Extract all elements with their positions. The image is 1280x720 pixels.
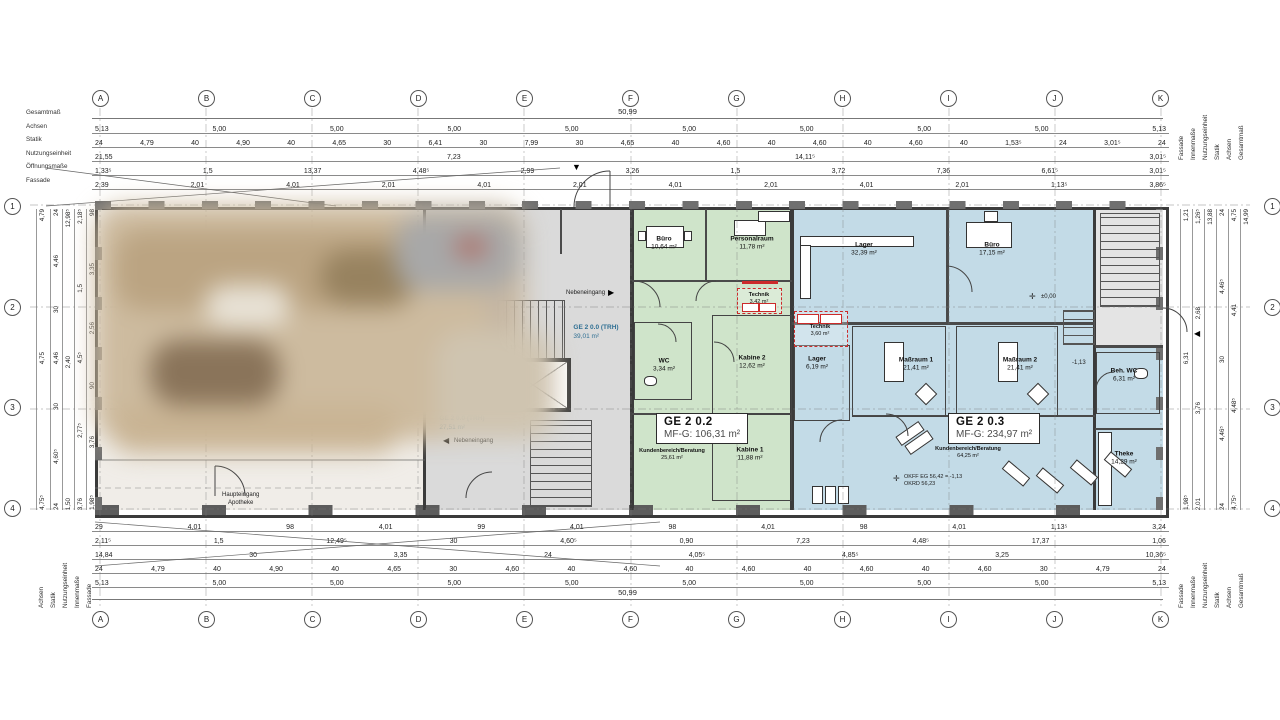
dim-value: 5,13 [1152, 126, 1166, 134]
dim-col-statik-right: 244,46⁵304,46⁵24 [1216, 209, 1228, 510]
dim-value: 24 [544, 552, 552, 560]
room-name: Kabine 2 [738, 355, 765, 363]
axis-bubble: I [940, 611, 957, 628]
dim-value: 0,90 [680, 538, 694, 546]
room-label: Büro 17,15 m² [979, 242, 1005, 259]
room-name: Technik [810, 324, 830, 331]
level-zero-note: ±0,00 [1041, 294, 1056, 302]
dim-value: 40 [672, 140, 680, 148]
dim-value: 1,06 [1152, 538, 1166, 546]
haupteingang-text: Haupteingang [222, 492, 259, 500]
dim-value: 24 [1219, 503, 1226, 510]
dim-value: 5,00 [565, 126, 579, 134]
dim-value: 29 [95, 524, 103, 532]
dim-row-statik-bottom: 244,79404,90404,65304,60404,60404,60404,… [92, 562, 1169, 574]
dim-row-statik-top: 244,79404,90404,65306,41307,99304,65404,… [92, 136, 1169, 148]
dim-label: Innenmaße [1190, 55, 1197, 160]
dim-value: 2,01 [955, 182, 969, 190]
dim-total-top: 50,99 [92, 107, 1163, 119]
room-label: Maßraum 2 21,41 m² [1003, 357, 1037, 374]
level-marker-icon: ✛ [893, 475, 900, 483]
dim-value: 1,13⁵ [1051, 524, 1068, 532]
dim-value: 3,26 [626, 168, 640, 176]
dim-value: 4,60 [742, 566, 756, 574]
wall [1095, 345, 1163, 348]
wc-fixture [644, 376, 657, 386]
room-area: 32,39 m² [851, 250, 877, 258]
dim-label: Nutzungseinheit [1202, 528, 1209, 608]
dim-value: 3,76 [1195, 402, 1202, 414]
dim-value: 13,88 [1207, 209, 1214, 225]
dim-value: 2,01 [1195, 498, 1202, 510]
dim-value: 4,60 [909, 140, 923, 148]
dim-value: 24 [1219, 209, 1226, 216]
dim-value: 98 [669, 524, 677, 532]
dim-value: 4,05⁵ [689, 552, 706, 560]
dim-value: 5,00 [1035, 580, 1049, 588]
furniture-table [734, 220, 766, 236]
dim-value: 4,60 [860, 566, 874, 574]
room-label: Technik 3,60 m² [810, 324, 830, 338]
dim-value: 5,00 [917, 580, 931, 588]
room-label: Kabine 2 12,62 m² [738, 355, 765, 372]
dim-value: 4,85⁵ [842, 552, 859, 560]
axis-bubble: E [516, 611, 533, 628]
dim-value: 4,01 [188, 524, 202, 532]
dim-value: 98 [860, 524, 868, 532]
dim-value: 3,24 [1152, 524, 1166, 532]
axis-bubble: F [622, 611, 639, 628]
axis-bubble: 2 [1264, 299, 1280, 316]
dim-row-nutzung-top: 21,557,2314,11⁵3,01⁵ [92, 150, 1169, 162]
dim-value: 4,01 [477, 182, 491, 190]
unit-area: MF-G: 106,31 m² [664, 429, 740, 440]
dim-label: Gesamtmaß [26, 106, 71, 120]
stairs-right [1100, 213, 1160, 307]
dim-value: 40 [864, 140, 872, 148]
axis-bubble: H [834, 611, 851, 628]
dim-value: 24 [1158, 566, 1166, 574]
room-label: Kundenbereich/Beratung 64,25 m² [935, 446, 1001, 460]
dim-value: 10,36⁵ [1146, 552, 1166, 560]
dim-value: 4,01 [379, 524, 393, 532]
dim-value: 5,00 [800, 580, 814, 588]
dim-value: 4,01 [860, 182, 874, 190]
level-minus-note: -1,13 [1072, 360, 1086, 368]
furniture-chair [984, 211, 998, 222]
room-label: Kundenbereich/Beratung 25,61 m² [639, 448, 705, 462]
room-area: 11,78 m² [730, 244, 773, 252]
dim-value: 1,50 [65, 498, 72, 510]
dim-value: 4,65 [387, 566, 401, 574]
dim-value: 4,79 [151, 566, 165, 574]
furniture-counter-theke [1098, 432, 1112, 506]
room-area: 3,34 m² [653, 366, 675, 374]
furniture-box [825, 486, 836, 504]
dim-value: 3,01⁵ [1149, 168, 1166, 176]
room-area: 21,41 m² [1003, 365, 1037, 373]
dim-label: Achsen [38, 528, 45, 608]
room-area: 25,61 m² [639, 455, 705, 462]
room-area: 14,29 m² [1111, 459, 1137, 467]
dim-value: 2,11⁵ [95, 538, 111, 546]
room-label: Büro 10,64 m² [651, 236, 677, 253]
dim-value: 40 [567, 566, 575, 574]
room-area: 11,88 m² [736, 455, 763, 463]
dim-value: 4,01 [761, 524, 775, 532]
dim-value: 3,86⁵ [1149, 182, 1166, 190]
dim-label: Statik [26, 133, 71, 147]
axis-bubble: H [834, 90, 851, 107]
dim-value: 1,33⁵ [95, 168, 112, 176]
dim-value: 1,5 [203, 168, 213, 176]
dim-label: Achsen [1226, 55, 1233, 160]
dim-row-oeffnung-top: 1,33⁵1,513,374,48⁵2,993,261,53,727,366,6… [92, 164, 1169, 176]
dim-label: Nutzungseinheit [62, 528, 69, 608]
room-area: 12,62 m² [738, 363, 765, 371]
trh-label-upper: GE 2 0.0 (TRH) 39,01 m² [573, 324, 618, 342]
dim-row-nutzung-bottom: 14,84303,35244,05⁵4,85⁵3,2510,36⁵ [92, 548, 1169, 560]
dim-col-innen-right: 1,26⁵2,683,762,01 [1192, 209, 1204, 510]
dim-value: 5,00 [330, 580, 344, 588]
dim-value: 30 [249, 552, 257, 560]
dim-value: 4,01 [669, 182, 683, 190]
dim-value: 30 [576, 140, 584, 148]
axis-bubble: B [198, 90, 215, 107]
room-label: WC 3,34 m² [653, 358, 675, 375]
dim-value: 5,00 [330, 126, 344, 134]
dim-value: 5,00 [800, 126, 814, 134]
room-label: Beh. WC 6,31 m² [1111, 368, 1138, 385]
dim-label: Statik [1214, 55, 1221, 160]
dim-value: 7,99 [525, 140, 539, 148]
axis-bubble: B [198, 611, 215, 628]
axis-bubble: G [728, 611, 745, 628]
room-label: Lager 6,19 m² [806, 356, 828, 373]
dim-value: 21,55 [95, 154, 113, 162]
room-name: Theke [1111, 451, 1137, 459]
dim-value: 4,01 [570, 524, 584, 532]
dim-label: Statik [1214, 528, 1221, 608]
wall [705, 209, 707, 280]
room-name: Büro [979, 242, 1005, 250]
axis-bubble: 1 [1264, 198, 1280, 215]
axis-bubble: 4 [4, 500, 21, 517]
axis-bubble: K [1152, 90, 1169, 107]
room-label: Kabine 1 11,88 m² [736, 447, 763, 464]
room-name: Kundenbereich/Beratung [639, 448, 705, 455]
dim-value: 4,60 [717, 140, 731, 148]
dim-value: 30 [450, 538, 458, 546]
axis-bubble: D [410, 611, 427, 628]
dim-label: Achsen [1226, 528, 1233, 608]
dim-value: 30 [479, 140, 487, 148]
dim-col-nutzung-right: 13,88 [1204, 209, 1216, 510]
dim-label-column-top-left: GesamtmaßAchsenStatikNutzungseinheitÖffn… [26, 106, 71, 188]
main-entrance-icon: ▼ [572, 163, 581, 172]
dim-value: 3,25 [995, 552, 1009, 560]
haupteingang-sub: Apotheke [222, 500, 259, 508]
dim-value: 5,00 [565, 580, 579, 588]
wall [946, 209, 949, 322]
unit-area: MF-G: 234,97 m² [956, 429, 1032, 440]
unit-title: GE 2 0.2 [664, 416, 740, 428]
dim-value: 4,79 [39, 209, 46, 221]
furniture-chair [684, 231, 692, 241]
dim-value: 24 [1158, 140, 1166, 148]
dim-value: 1,5 [731, 168, 741, 176]
dim-total-bottom: 50,99 [92, 588, 1163, 600]
dim-value: 4,79 [1096, 566, 1110, 574]
dim-value: 2,01 [573, 182, 587, 190]
room-name: Kundenbereich/Beratung [935, 446, 1001, 453]
room-name: Technik [749, 292, 769, 299]
room-name: Personalraum [730, 236, 773, 244]
dim-col-achsen-right: 4,754,414,48⁵4,75⁵ [1228, 209, 1240, 510]
dim-value: 5,00 [682, 580, 696, 588]
dim-value: 2,99 [521, 168, 535, 176]
axis-bubble: A [92, 611, 109, 628]
dim-value: 40 [287, 140, 295, 148]
room-name: Kabine 1 [736, 447, 763, 455]
level-note: OKFF EG 56,42 = -1,13 OKRD 56,23 [904, 474, 962, 488]
dim-value: 24 [1059, 140, 1067, 148]
dim-value: 3,01⁵ [1104, 140, 1121, 148]
dim-value: 1,13⁵ [1051, 182, 1068, 190]
dim-value: 40 [804, 566, 812, 574]
dim-value: 30 [1040, 566, 1048, 574]
room-name: Lager [806, 356, 828, 364]
dim-value: 4,60 [813, 140, 827, 148]
blurred-region [55, 190, 570, 475]
technik-redbar [742, 281, 778, 284]
dim-value: 1,26⁵ [1195, 209, 1202, 224]
dim-value: 17,37 [1032, 538, 1050, 546]
dim-value: 1,5 [214, 538, 224, 546]
stairs-right-small [1063, 310, 1095, 345]
axis-bubble: C [304, 90, 321, 107]
dim-value: 4,75 [39, 352, 46, 364]
dim-label: Nutzungseinheit [1202, 55, 1209, 160]
dim-value: 99 [477, 524, 485, 532]
axis-bubble: 2 [4, 299, 21, 316]
dim-value: 4,48⁵ [913, 538, 930, 546]
dim-value: 14,11⁵ [795, 154, 815, 162]
dim-value: 30 [383, 140, 391, 148]
dim-label: Fassade [86, 528, 93, 608]
axis-bubble: E [516, 90, 533, 107]
dim-label: Achsen [26, 120, 71, 134]
entrance-arrow-icon: ▶ [608, 289, 614, 297]
axis-bubble: C [304, 611, 321, 628]
dim-value: 6,61⁵ [1042, 168, 1059, 176]
dim-value: 1,53⁵ [1005, 140, 1022, 148]
axis-bubble: 1 [4, 198, 21, 215]
dim-value: 40 [768, 140, 776, 148]
dim-value: 5,00 [682, 126, 696, 134]
furniture-shelf [800, 245, 811, 299]
dim-col-gesamt-right: 14,99 [1240, 209, 1252, 510]
dim-value: 5,13 [95, 126, 109, 134]
dim-value: 7,23 [447, 154, 461, 162]
trh-name: GE 2 0.0 (TRH) [573, 324, 618, 333]
dim-value: 2,01 [764, 182, 778, 190]
dim-value: 4,90 [269, 566, 283, 574]
dim-value: 4,65 [621, 140, 635, 148]
dim-value: 5,00 [212, 126, 226, 134]
dim-value: 24 [53, 503, 60, 510]
dim-value: 24 [95, 566, 103, 574]
dim-row-achsen-bottom: 5,135,005,005,005,005,005,005,005,005,13 [92, 576, 1169, 588]
dim-value: 24 [95, 140, 103, 148]
dim-value: 5,00 [1035, 126, 1049, 134]
dim-value: 30 [1219, 356, 1226, 363]
room-area: 64,25 m² [935, 453, 1001, 460]
room-area: 10,64 m² [651, 244, 677, 252]
dim-value: 4,75 [1231, 209, 1238, 221]
dim-label: Gesamtmaß [1238, 528, 1245, 608]
dim-label: Nutzungseinheit [26, 147, 71, 161]
haupteingang-label: Haupteingang Apotheke [222, 492, 259, 508]
room-label: Maßraum 1 21,41 m² [899, 357, 933, 374]
room-name: Beh. WC [1111, 368, 1138, 376]
dim-value: 4,60⁵ [560, 538, 577, 546]
dim-value: 2,01 [382, 182, 396, 190]
dim-value: 40 [213, 566, 221, 574]
dim-label: Innenmaße [1190, 528, 1197, 608]
dim-value: 4,75⁵ [1231, 495, 1238, 510]
axis-bubbles-bottom: ABCDEFGHIJK [92, 611, 1169, 628]
row-bubbles-right: 1234 [1264, 198, 1280, 517]
dim-value: 40 [191, 140, 199, 148]
room-name: Maßraum 1 [899, 357, 933, 365]
floor-plan-drawing: Büro 10,64 m² Personalraum 11,78 m² Tech… [0, 0, 1280, 720]
dim-value: 40 [331, 566, 339, 574]
dim-value: 4,79 [140, 140, 154, 148]
room-area: 3,42 m² [749, 299, 769, 306]
dim-value: 30 [449, 566, 457, 574]
axis-bubble: F [622, 90, 639, 107]
dim-value: 3,72 [832, 168, 846, 176]
dim-value: 2,01 [191, 182, 205, 190]
dim-value: 4,60 [978, 566, 992, 574]
dim-value: 5,13 [1152, 580, 1166, 588]
dim-value: 98 [286, 524, 294, 532]
room-label: Technik 3,42 m² [749, 292, 769, 306]
dim-value: 40 [960, 140, 968, 148]
dim-value: 6,31 [1183, 352, 1190, 364]
dim-value: 3,01⁵ [1149, 154, 1166, 162]
okff-line2: OKRD 56,23 [904, 481, 962, 488]
dim-value: 7,36 [937, 168, 951, 176]
axis-bubble: 4 [1264, 500, 1280, 517]
dim-label: Innenmaße [74, 528, 81, 608]
room-label: Personalraum 11,78 m² [730, 236, 773, 253]
dim-value: 4,01 [952, 524, 966, 532]
dim-row-innen-bottom: 2,11⁵1,512,49⁵304,60⁵0,907,234,48⁵17,371… [92, 534, 1169, 546]
dim-value: 4,41 [1231, 304, 1238, 316]
dim-value: 2,39 [95, 182, 109, 190]
axis-bubble: J [1046, 90, 1063, 107]
room-name: Lager [851, 242, 877, 250]
room-label: Theke 14,29 m² [1111, 451, 1137, 468]
axis-bubble: A [92, 90, 109, 107]
room-area: 6,19 m² [806, 364, 828, 372]
dim-col-fassade-right: 1,216,311,98⁵ [1180, 209, 1192, 510]
dim-value: 5,00 [447, 580, 461, 588]
dim-value: 3,76 [77, 498, 84, 510]
dim-value: 40 [686, 566, 694, 574]
dim-label: Statik [50, 528, 57, 608]
unit-title: GE 2 0.3 [956, 416, 1032, 428]
dim-value: 2,68 [1195, 307, 1202, 319]
dim-value: 6,41 [428, 140, 442, 148]
axis-bubble: K [1152, 611, 1169, 628]
dim-label-column-bottom-right: FassadeInnenmaßeNutzungseinheitStatikAch… [1178, 528, 1245, 608]
dim-value: 12,49⁵ [326, 538, 346, 546]
dim-value: 5,13 [95, 580, 109, 588]
axis-bubbles-top: ABCDEFGHIJK [92, 90, 1169, 107]
furniture-counter [758, 211, 790, 222]
dim-row-fassade-bottom: 294,01984,01994,01984,01984,011,13⁵3,24 [92, 520, 1169, 532]
dim-value: 1,21 [1183, 209, 1190, 221]
dim-value: 3,35 [394, 552, 408, 560]
dim-value: 5,00 [917, 126, 931, 134]
technik-cell [820, 314, 842, 324]
trh-area: 39,01 m² [573, 333, 618, 342]
wall [1095, 428, 1163, 430]
dim-value: 1,98⁵ [1183, 495, 1190, 510]
dim-label-column-bottom-left: AchsenStatikNutzungseinheitInnenmaßeFass… [38, 528, 93, 608]
axis-bubble: I [940, 90, 957, 107]
row-bubbles-left: 1234 [4, 198, 21, 517]
dim-label: Gesamtmaß [1238, 55, 1245, 160]
furniture-chair [638, 231, 646, 241]
dim-label: Fassade [1178, 528, 1185, 608]
room-area: 17,15 m² [979, 250, 1005, 258]
dim-value: 40 [922, 566, 930, 574]
technik-cell [797, 314, 819, 324]
dim-label: Öffnungsmaße [26, 160, 71, 174]
room-area: 3,60 m² [810, 331, 830, 338]
dim-value: 4,48⁵ [1231, 398, 1238, 413]
dim-value: 5,00 [447, 126, 461, 134]
room-name: Büro [651, 236, 677, 244]
level-marker-icon: ✛ [1029, 293, 1036, 301]
room-area: 6,31 m² [1111, 376, 1138, 384]
axis-bubble: 3 [4, 399, 21, 416]
dim-value: 4,46⁵ [1219, 426, 1226, 441]
dim-label-column-top-right: FassadeInnenmaßeNutzungseinheitStatikAch… [1178, 55, 1245, 160]
side-entrance-icon: ◀ [1194, 330, 1200, 338]
unit-box-ge202: GE 2 0.2 MF-G: 106,31 m² [656, 413, 748, 444]
nebeneingang-label-upper: Nebeneingang [566, 290, 605, 298]
dim-value: 14,99 [1243, 209, 1250, 225]
axis-bubble: D [410, 90, 427, 107]
dim-value: 4,75⁵ [39, 495, 46, 510]
room-name: WC [653, 358, 675, 366]
dim-value: 5,00 [212, 580, 226, 588]
dim-value: 7,23 [796, 538, 810, 546]
dim-value: 4,46⁵ [1219, 279, 1226, 294]
axis-bubble: 3 [1264, 399, 1280, 416]
dim-label: Fassade [26, 174, 71, 188]
dim-row-fassade-top: 2,392,014,012,014,012,014,012,014,012,01… [92, 178, 1169, 190]
dim-value: 13,37 [304, 168, 322, 176]
axis-bubble: G [728, 90, 745, 107]
dim-value: 14,84 [95, 552, 113, 560]
room-area: 21,41 m² [899, 365, 933, 373]
